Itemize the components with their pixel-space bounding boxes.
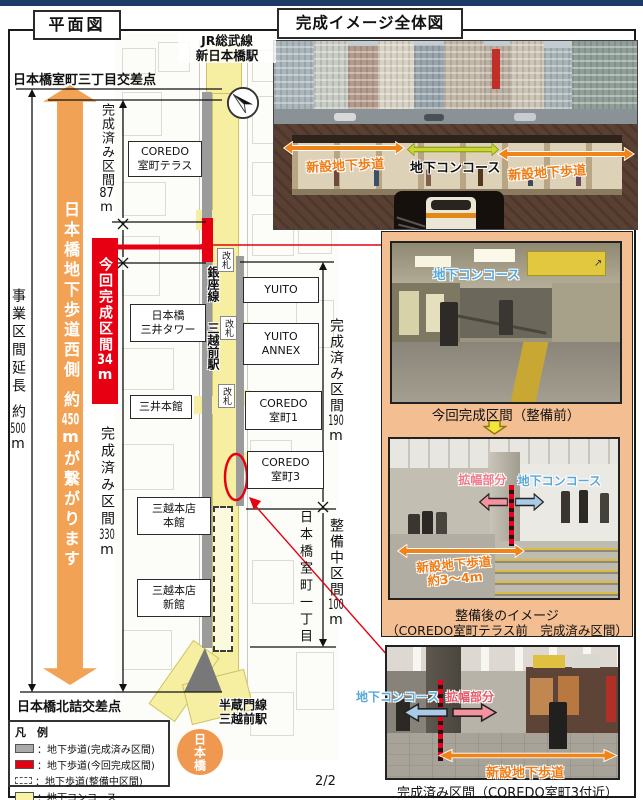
building-mitsui-honkan: 三井本館 <box>130 395 192 419</box>
overview-street <box>274 109 637 124</box>
ticket-gate-label: 改札 <box>218 384 235 408</box>
person-figure <box>600 493 609 523</box>
now-complete-34m-box: 今回完成区間34m <box>92 238 118 404</box>
concourse-arrow <box>407 143 499 156</box>
person-figure <box>436 512 447 534</box>
widen-left-arrow <box>479 493 508 511</box>
legend-swatch-dashed <box>15 777 32 784</box>
bottom-intersection-label: 日本橋北詰交差点 <box>17 696 121 715</box>
building-yuito: YUITO <box>243 277 319 303</box>
walkway-under-construction <box>213 506 233 652</box>
legend: 凡 例 ：地下歩道(完成済み区間) ：地下歩道(今回完成区間) ：地下歩道(整備… <box>8 720 170 787</box>
train-stripe <box>426 213 476 218</box>
bottom-walkway-label: 新設地下歩道 <box>486 762 564 781</box>
photo-before: ↗ 地下コンコース <box>390 241 622 404</box>
top-intersection-label: 日本橋室町三丁目交差点 <box>13 69 156 88</box>
concourse-center-label: 地下コンコース <box>410 157 500 176</box>
overview-building <box>544 48 572 109</box>
project-extension-label: 事業区間延長約500m <box>8 288 28 488</box>
walkway-new-34 <box>202 218 213 262</box>
person-figure <box>561 491 570 523</box>
legend-swatch-yellow <box>15 792 34 800</box>
overview-title-box: 完成イメージ全体図 <box>277 8 463 39</box>
right-walkway-arrow <box>497 147 635 161</box>
map-parcel <box>122 182 166 216</box>
car <box>514 113 536 121</box>
car <box>424 114 444 121</box>
photo-floor <box>392 342 620 402</box>
map-parcel <box>122 92 162 136</box>
top-navy-bar <box>0 0 643 6</box>
legend-row-label: ：地下歩道(今回完成区間) <box>37 757 155 772</box>
red-dotted-line <box>509 485 514 545</box>
page: 平面図 完成イメージ全体図 日本橋室町三丁目交差点 日本橋北詰交差点 事業区間延… <box>0 0 643 800</box>
person-figure <box>422 511 433 535</box>
map-parcel <box>122 444 174 490</box>
measure-330m: 完成済み区間330m <box>97 426 117 616</box>
nihonbashi-bridge-badge: 日本橋 <box>177 729 223 775</box>
car <box>334 113 356 121</box>
ginza-line-label: 銀座線 <box>205 266 222 322</box>
yellow-sign <box>533 655 565 668</box>
train-windshield <box>431 200 471 210</box>
overview-building <box>510 41 544 109</box>
wall-poster <box>399 291 420 336</box>
photo-after: 拡幅部分 地下コンコース 新設地下歩道 約3～4m <box>388 437 620 600</box>
overview-title: 完成イメージ全体図 <box>296 14 444 33</box>
legend-row-label: ：地下コンコース <box>37 789 117 800</box>
person-figure <box>579 490 588 523</box>
overview-illustration <box>273 40 638 230</box>
compass-icon <box>226 86 260 120</box>
map-parcel <box>252 560 294 604</box>
concourse-right-arrow <box>515 493 544 511</box>
building-mitsukoshi-shinkan: 三越本店 新館 <box>137 579 211 617</box>
direction-sign: ↗ <box>527 251 607 276</box>
overview-building <box>444 41 484 109</box>
overview-building <box>314 41 348 109</box>
street-edge <box>247 40 248 700</box>
orange-arrow-text: 日本橋地下歩道西側約450mが繋がります <box>58 201 82 570</box>
overview-building <box>348 46 378 109</box>
legend-title: 凡 例 <box>15 724 163 740</box>
ticket-gate-label: 改札 <box>217 248 234 272</box>
legend-swatch-gray <box>15 744 34 753</box>
building-mitsukoshi-honkan: 三越本店 本館 <box>137 497 211 535</box>
jr-shin-nihonbashi-label: JR総武線 新日本橋駅 <box>178 33 276 63</box>
overview-building <box>572 41 637 111</box>
ceiling-light <box>474 249 515 262</box>
map-parcel <box>122 348 174 390</box>
left-walkway-label: 新設地下歩道 <box>306 153 385 176</box>
caption-before: 今回完成区間（整備前） <box>390 404 622 424</box>
new-walkway-arrow <box>438 749 618 762</box>
map-parcel <box>122 630 172 670</box>
measure-87m: 完成済み区間87m <box>97 103 116 223</box>
legend-row-label: ：地下歩道(完成済み区間) <box>37 741 155 756</box>
ticket-gate-label: 改札 <box>220 316 237 340</box>
concourse-left-arrow <box>403 703 448 722</box>
measure-190m: 完成済み区間190m <box>326 318 346 463</box>
map-parcel <box>296 652 334 710</box>
photo1-concourse-label: 地下コンコース <box>433 264 520 283</box>
legend-swatch-red <box>15 760 34 769</box>
overview-building <box>378 41 414 109</box>
measure-100m: 整備中区間100m <box>326 518 346 650</box>
building-coredo-3: COREDO 室町3 <box>247 451 324 489</box>
page-number: 2/2 <box>315 774 336 789</box>
nihonbashi-bridge-text: 日本橋 <box>192 733 209 772</box>
person-figure <box>549 702 567 749</box>
building-coredo-terrace: COREDO 室町テラス <box>128 141 202 177</box>
left-walkway-arrow <box>283 141 405 155</box>
building-mitsui-tower: 日本橋 三井タワー <box>130 304 206 342</box>
map-parcel <box>122 236 160 296</box>
overview-building <box>274 41 314 111</box>
building-yuito-annex: YUITO ANNEX <box>243 323 319 365</box>
person-figure <box>408 514 419 535</box>
building-coredo-1: COREDO 室町1 <box>245 391 322 430</box>
red-banner <box>492 49 500 89</box>
photo2-concourse-label: 地下コンコース <box>518 472 601 489</box>
widen-right-arrow <box>452 703 497 722</box>
now-complete-34m-text: 今回完成区間34m <box>95 257 115 385</box>
plan-title-box: 平面図 <box>33 10 121 40</box>
caption-coredo3: 完成済み区間（COREDO室町3付近） <box>390 782 625 800</box>
caption-after-line2: （COREDO室町テラス前 完成済み区間） <box>381 620 633 639</box>
overview-building <box>414 45 444 109</box>
red-banner <box>606 676 615 722</box>
photo2-widen-label: 拡幅部分 <box>458 471 506 488</box>
hanzomon-station-label: 半蔵門線 三越前駅 <box>214 698 272 727</box>
person-figure <box>499 300 513 335</box>
walkway-done-87 <box>202 92 212 218</box>
muromachi-1chome-label: 日本橋室町一丁目 <box>295 510 314 648</box>
legend-row-label: ：地下歩道(整備中区間) <box>35 773 143 788</box>
white-sign <box>572 654 600 668</box>
person-figure <box>440 302 458 347</box>
plan-title: 平面図 <box>48 15 105 35</box>
